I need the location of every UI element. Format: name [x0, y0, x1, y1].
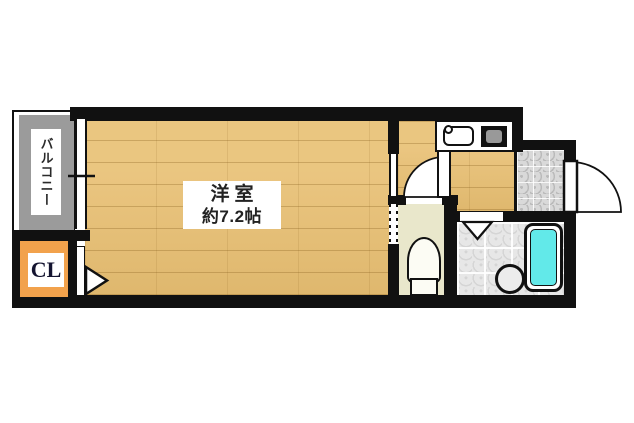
closet-label: CL [28, 253, 64, 287]
toilet-doorway [406, 196, 442, 204]
bath-doorway [460, 212, 503, 221]
main-room-label: 洋室 約7.2帖 [183, 181, 281, 229]
wall-top [70, 107, 522, 121]
room-kitchen-opening [389, 154, 398, 196]
main-room-size: 約7.2帖 [202, 206, 262, 227]
wall-east-upper [564, 145, 576, 166]
closet-door-panel [76, 246, 85, 296]
faucet-icon [444, 125, 453, 134]
bathtub-water [530, 229, 557, 286]
kitchen-counter [435, 120, 514, 152]
entrance-tile-floor [517, 150, 565, 211]
wall-closet-top [12, 230, 90, 241]
wall-east-lower [564, 211, 576, 308]
balcony-label: バルコニー [31, 129, 61, 215]
wall-toilet-west [388, 244, 399, 296]
washbasin-icon [495, 264, 525, 294]
toilet-tank [410, 278, 438, 296]
floor-plan-canvas: バルコニー CL 洋室 約7.2帖 [0, 0, 634, 423]
wall-south [12, 295, 576, 308]
burner-icon [486, 130, 502, 143]
sink-icon [443, 126, 474, 146]
entry-door-swing-icon [571, 162, 621, 212]
wall-closet-west [12, 230, 20, 308]
entrance-step-edge [514, 150, 517, 211]
bathtub-icon [524, 223, 563, 292]
wall-room-kitchen [388, 121, 399, 154]
toilet-west-partition [389, 204, 398, 244]
stove-icon [481, 126, 507, 147]
entry-door-leaf [564, 161, 577, 212]
toilet-icon [407, 237, 441, 284]
balcony-window [75, 119, 87, 229]
main-room-name: 洋室 [205, 183, 258, 207]
